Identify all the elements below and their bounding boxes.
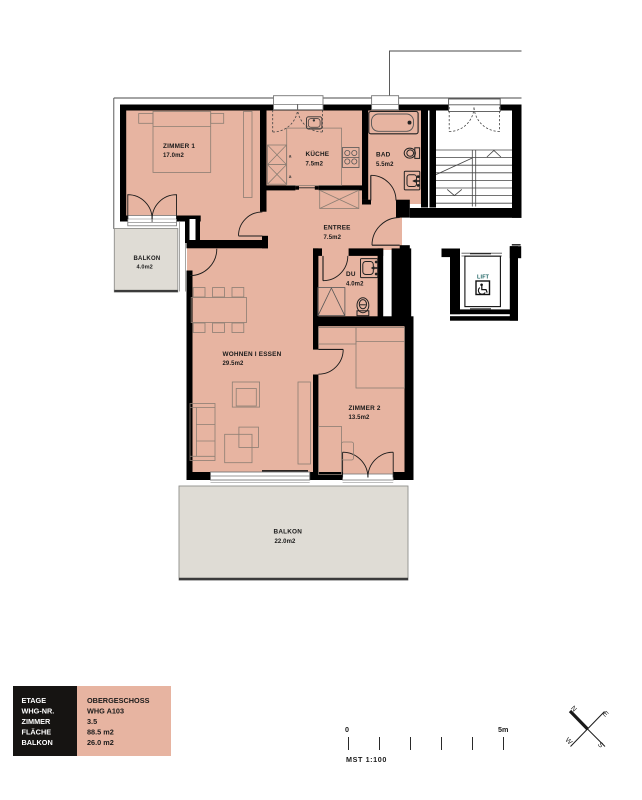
svg-text:WHG-NR.: WHG-NR. — [22, 707, 55, 716]
svg-text:BALKON: BALKON — [22, 738, 53, 747]
svg-text:LIFT: LIFT — [477, 275, 490, 281]
svg-text:ZIMMER: ZIMMER — [22, 717, 52, 726]
svg-text:29.5m2: 29.5m2 — [223, 361, 245, 367]
svg-text:13.5m2: 13.5m2 — [349, 415, 371, 421]
svg-text:7.5m2: 7.5m2 — [324, 235, 342, 241]
svg-text:0: 0 — [345, 725, 349, 734]
svg-text:BALKON: BALKON — [134, 256, 161, 262]
svg-text:7.5m2: 7.5m2 — [306, 162, 324, 168]
svg-text:OBERGESCHOSS: OBERGESCHOSS — [87, 696, 150, 705]
svg-text:17.0m2: 17.0m2 — [163, 153, 185, 159]
svg-text:BALKON: BALKON — [274, 529, 303, 536]
svg-text:KÜCHE: KÜCHE — [306, 149, 330, 158]
svg-text:FLÄCHE: FLÄCHE — [22, 728, 52, 737]
svg-text:a: a — [289, 155, 292, 160]
svg-text:a: a — [289, 175, 292, 180]
svg-text:ENTREE: ENTREE — [324, 225, 352, 232]
svg-text:22.0m2: 22.0m2 — [275, 539, 297, 545]
svg-text:ZIMMER 1: ZIMMER 1 — [163, 143, 195, 150]
svg-text:WHG A103: WHG A103 — [87, 707, 124, 716]
svg-text:4.0m2: 4.0m2 — [346, 282, 364, 288]
svg-text:88.5 m2: 88.5 m2 — [87, 728, 114, 737]
svg-text:4.0m2: 4.0m2 — [137, 265, 153, 271]
svg-text:3.5: 3.5 — [87, 717, 97, 726]
svg-text:5.5m2: 5.5m2 — [376, 162, 394, 168]
svg-text:5m: 5m — [498, 725, 508, 734]
svg-text:26.0 m2: 26.0 m2 — [87, 738, 114, 747]
svg-text:DU: DU — [346, 271, 356, 278]
svg-text:ETAGE: ETAGE — [22, 696, 47, 705]
svg-text:MST 1:100: MST 1:100 — [346, 755, 387, 764]
svg-text:ZIMMER 2: ZIMMER 2 — [349, 405, 381, 412]
svg-text:BAD: BAD — [376, 152, 391, 159]
svg-text:WOHNEN I ESSEN: WOHNEN I ESSEN — [223, 351, 282, 358]
